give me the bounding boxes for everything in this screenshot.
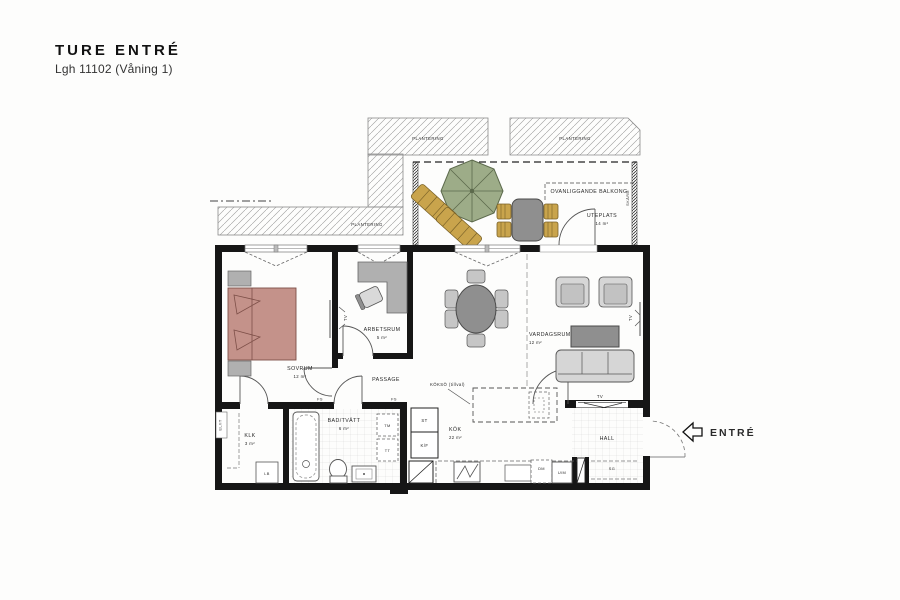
- vardagsrum-label: VARDAGSRUM: [529, 332, 571, 338]
- koksoe-label: KÖKSÖ (tillval): [430, 382, 465, 387]
- plantering-label-3: PLANTERING: [351, 222, 383, 227]
- outdoor-table: [512, 199, 543, 241]
- nightstand: [228, 361, 251, 376]
- vardagsrum-area: 12 m²: [529, 340, 542, 345]
- plantering-label-1: PLANTERING: [412, 136, 444, 141]
- sovrum-label: SOVRUM: [287, 366, 313, 372]
- uteplats-label: UTEPLATS: [587, 213, 617, 219]
- kok-label: KÖK: [449, 426, 461, 433]
- fs-label-1: FS: [317, 397, 323, 402]
- toilet-tank: [330, 476, 347, 483]
- bad-label: BAD/TVÄTT: [328, 417, 361, 424]
- office-chair: [355, 286, 384, 311]
- tv-label-hall: TV: [597, 394, 603, 399]
- tv-label-sovrum: TV: [343, 315, 348, 321]
- outdoor-dining-set: [497, 199, 558, 241]
- tt-label: TT: [385, 448, 391, 453]
- closet-shelving: [227, 413, 239, 468]
- walk-in-closet: LB KLK 3 m²: [227, 413, 278, 483]
- stove: [454, 462, 480, 482]
- bathtub: [293, 412, 319, 481]
- tv-antenna-marks: [635, 310, 640, 326]
- klk-label: KLK: [244, 433, 255, 439]
- entrance-arrow-icon: [683, 423, 702, 441]
- entrance-label: ENTRÉ: [710, 426, 756, 439]
- dining-set: [445, 270, 508, 347]
- island-sink: [529, 392, 549, 418]
- floorplan-drawing: PLANTERING PLANTERING PLANTERING SKÄRM S…: [0, 0, 900, 600]
- hall-label: HALL: [600, 436, 615, 442]
- plantering-left-bar: [218, 207, 403, 235]
- armchair: [556, 277, 589, 307]
- tm-label: TM: [384, 423, 390, 428]
- outdoor-chair: [544, 222, 558, 237]
- kf-label: K/F: [421, 443, 429, 448]
- dm-label: DM: [538, 466, 545, 471]
- armchair: [599, 277, 632, 307]
- planting-beds: PLANTERING PLANTERING PLANTERING: [210, 118, 640, 235]
- window-arbetsrum: [358, 245, 400, 264]
- bad-area: 6 m²: [339, 426, 349, 431]
- kok-area: 22 m²: [449, 435, 462, 440]
- dining-table: [456, 285, 496, 333]
- door-sovrum-klk: [240, 376, 268, 404]
- um-label: U/M: [558, 470, 566, 475]
- klk-area: 3 m²: [245, 441, 255, 446]
- office-furniture: [355, 262, 407, 313]
- lb-label: LB: [264, 471, 270, 476]
- arbetsrum-area: 5 m²: [377, 335, 387, 340]
- st-label: ST: [421, 418, 427, 423]
- fs-label-2: FS: [391, 397, 397, 402]
- dining-chair: [467, 334, 485, 347]
- tv-label-vardagsrum: TV: [628, 315, 633, 321]
- kitchen-island-optional: [473, 388, 557, 422]
- island-sink-inner: [534, 398, 544, 412]
- window-vardagsrum: [455, 245, 520, 266]
- outdoor-chair: [497, 204, 511, 219]
- plantering-left-strip: [368, 154, 403, 207]
- elit-label: EL/IT: [218, 419, 223, 431]
- sovrum-area: 12 m²: [294, 374, 307, 379]
- passage-label: PASSAGE: [372, 377, 400, 383]
- dining-chair: [467, 270, 485, 283]
- coffee-table: [571, 326, 619, 347]
- balcony-above-label: OVANLIGGANDE BALKONG: [550, 189, 627, 195]
- bedroom-furniture: [228, 271, 296, 376]
- dining-chair: [495, 310, 508, 328]
- door-bad-passage: [334, 376, 362, 404]
- outdoor-chair: [544, 204, 558, 219]
- sofa: [556, 350, 634, 382]
- nightstand: [228, 271, 251, 286]
- floorplan-page: TURE ENTRÉ Lgh 11102 (Våning 1) PLANTERI…: [0, 0, 900, 600]
- entrance-annotation: ENTRÉ: [683, 423, 756, 441]
- living-set: [556, 277, 634, 382]
- parasol-pole: [470, 189, 474, 193]
- entrance-door: [650, 421, 685, 457]
- window-sovrum: [245, 245, 307, 266]
- koksoe-leader: [448, 389, 470, 404]
- arbetsrum-label: ARBETSRUM: [364, 327, 401, 333]
- tv-mark-vardagsrum: TV: [628, 302, 640, 336]
- plantering-label-2: PLANTERING: [559, 136, 591, 141]
- sg-label: SG: [609, 466, 615, 471]
- elit-shaft: EL/IT: [216, 412, 227, 438]
- washbasin-drain: [363, 473, 365, 475]
- dishwasher: [531, 460, 552, 483]
- uteplats-area: 14 m²: [596, 221, 609, 226]
- dining-chair: [495, 290, 508, 308]
- kitchen-sink: [505, 465, 531, 481]
- screen-right: [632, 162, 637, 245]
- kitchen: KÖKSÖ (tillval) KÖK 22 m² ST K/F DM U/M: [409, 382, 585, 483]
- uteplats-patio: SKÄRM SKÄRM OVANLIGGANDE BALKONG UTEPLAT…: [410, 160, 637, 252]
- door-sovrum-passage: [304, 368, 332, 396]
- outdoor-chair: [497, 222, 511, 237]
